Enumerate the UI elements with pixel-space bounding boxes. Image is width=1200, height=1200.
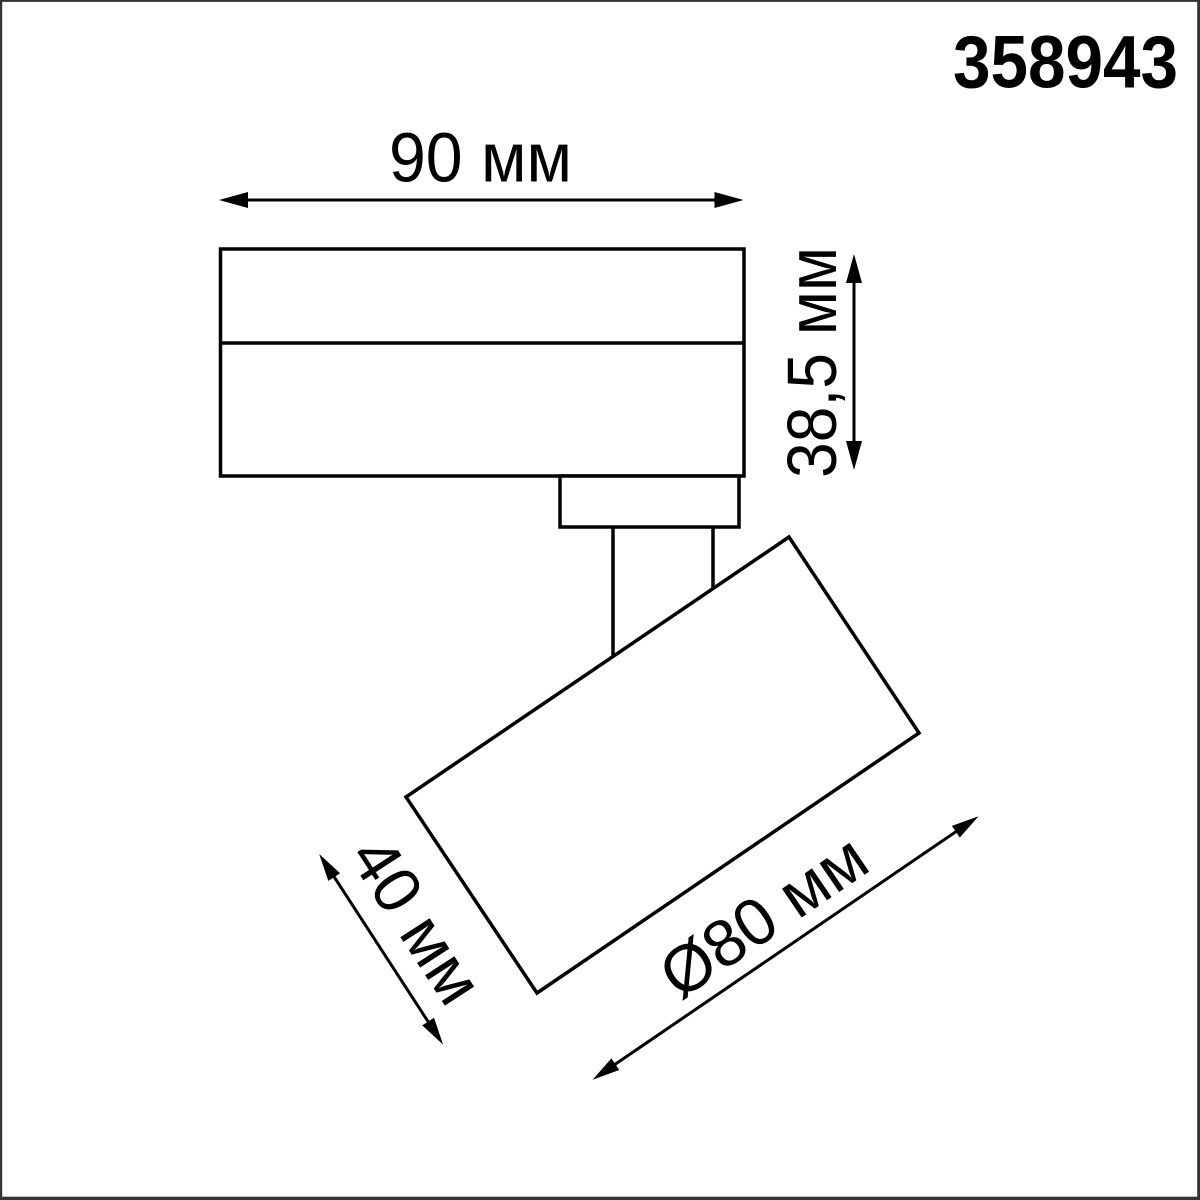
svg-text:90 мм: 90 мм — [389, 119, 572, 197]
svg-text:358943: 358943 — [953, 21, 1178, 104]
svg-text:38,5 мм: 38,5 мм — [773, 247, 851, 478]
